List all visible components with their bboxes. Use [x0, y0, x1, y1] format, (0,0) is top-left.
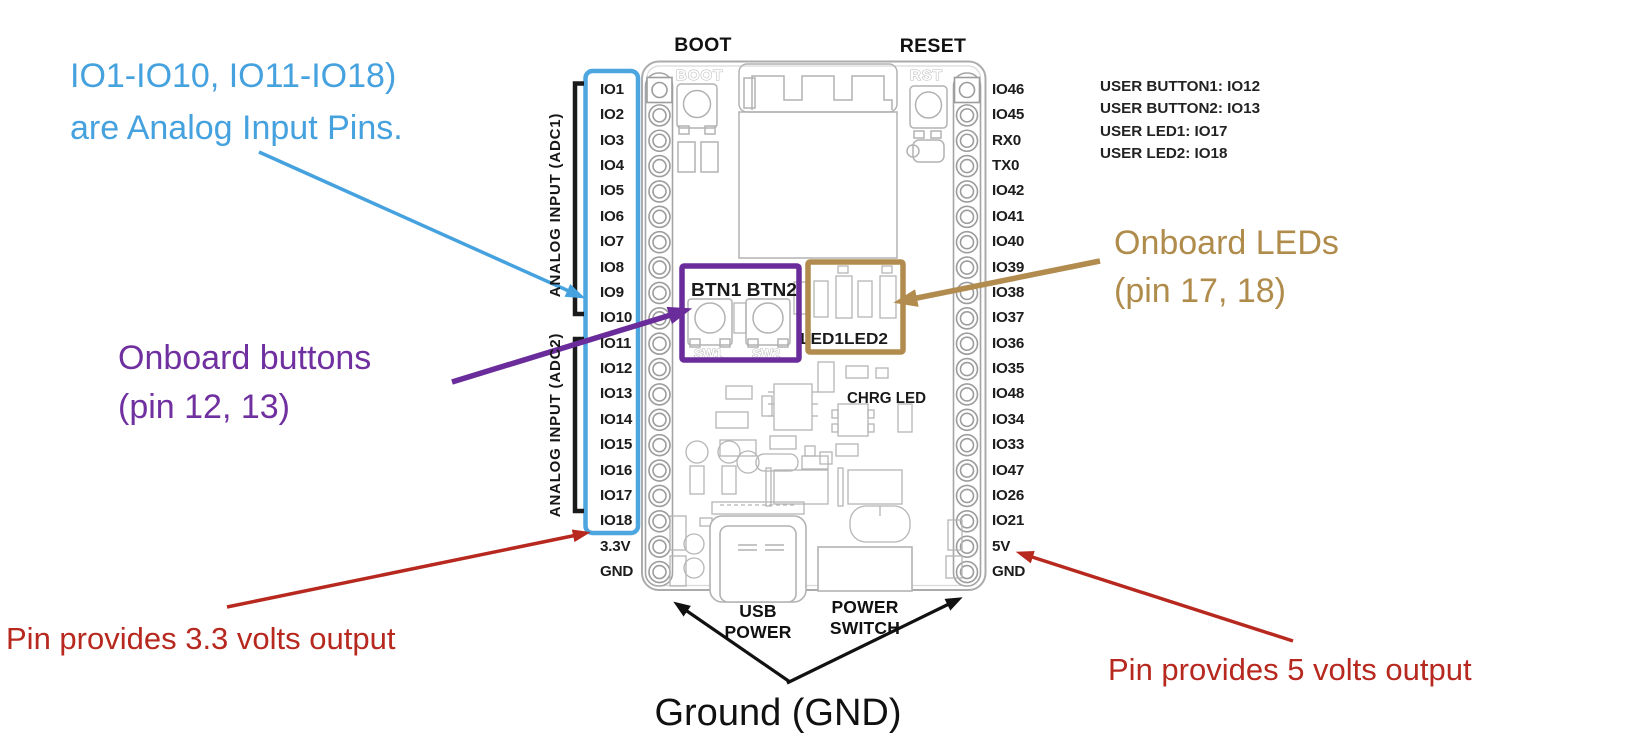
silkscreen-text: BOOT RST BTN1 BTN2 SW1 SW2 LED1LED2 CHRG…	[676, 67, 943, 407]
pin-label-left-io8: IO8	[600, 258, 624, 278]
user-led2-assignment: USER LED2: IO18	[1100, 143, 1260, 165]
reset-button	[907, 86, 947, 162]
analog-pins-note-line1: IO1-IO10, IO11-IO18)	[70, 50, 403, 102]
power-switch-component	[818, 547, 912, 591]
pin-label-right-io37: IO37	[992, 308, 1024, 328]
pin-label-left-io7: IO7	[600, 232, 624, 252]
pin-label-left-io14: IO14	[600, 410, 632, 430]
pin-label-left-io6: IO6	[600, 207, 624, 227]
pin-label-right-io40: IO40	[992, 232, 1024, 252]
analog-pins-note-line2: are Analog Input Pins.	[70, 102, 403, 154]
ground-note: Ground (GND)	[628, 692, 928, 735]
pin-label-left-io11: IO11	[600, 334, 631, 354]
user-buttons	[688, 299, 790, 347]
onboard-leds-note: Onboard LEDs (pin 17, 18)	[1114, 219, 1339, 315]
onboard-leds-note-line1: Onboard LEDs	[1114, 219, 1339, 267]
pin-label-left-gnd: GND	[600, 562, 633, 582]
pin-label-right-io38: IO38	[992, 283, 1024, 303]
module-shield	[739, 112, 897, 258]
silkscreen-led1-led2: LED1LED2	[800, 331, 888, 348]
adc1-bracket	[575, 84, 584, 315]
pin-label-left-io12: IO12	[600, 359, 632, 379]
pin-label-left-io17: IO17	[600, 486, 632, 506]
analog-note-arrow	[259, 152, 571, 292]
pin-label-left-io13: IO13	[600, 384, 632, 404]
pin-label-right-gnd: GND	[992, 562, 1025, 582]
pin-label-right-io48: IO48	[992, 384, 1024, 404]
v33-note-arrow	[227, 535, 577, 607]
power-switch-label: POWER SWITCH	[817, 597, 913, 638]
pin-label-left-io9: IO9	[600, 283, 624, 303]
board-outline	[642, 62, 986, 591]
v5-output-note: Pin provides 5 volts output	[1108, 652, 1472, 688]
silkscreen-btn1-btn2: BTN1 BTN2	[691, 280, 797, 300]
silkscreen-chrg-led: CHRG LED	[847, 390, 926, 407]
pin-label-left-33v: 3.3V	[600, 537, 630, 557]
user-button2-assignment: USER BUTTON2: IO13	[1100, 98, 1260, 120]
pin-label-left-io4: IO4	[600, 156, 624, 176]
pin-label-right-5v: 5V	[992, 537, 1010, 557]
v33-output-note: Pin provides 3.3 volts output	[6, 621, 395, 657]
pin-label-right-io39: IO39	[992, 258, 1024, 278]
pin-label-right-tx0: TX0	[992, 156, 1019, 176]
onboard-leds-note-line2: (pin 17, 18)	[1114, 267, 1339, 315]
silkscreen-boot: BOOT	[676, 67, 723, 84]
pin-label-left-io3: IO3	[600, 131, 624, 151]
pinout-diagram: BOOT RST BTN1 BTN2 SW1 SW2 LED1LED2 CHRG…	[0, 0, 1634, 754]
pin-label-right-io41: IO41	[992, 207, 1024, 227]
user-led1-assignment: USER LED1: IO17	[1100, 121, 1260, 143]
adc2-bracket	[575, 339, 584, 511]
v5-note-arrow	[1029, 556, 1293, 641]
user-pin-assignments: USER BUTTON1: IO12 USER BUTTON2: IO13 US…	[1100, 76, 1260, 165]
power-switch-label-line2: SWITCH	[817, 618, 913, 639]
pin-label-left-io18: IO18	[600, 511, 632, 531]
pin-label-right-io42: IO42	[992, 181, 1024, 201]
pin-label-right-io26: IO26	[992, 486, 1024, 506]
pin-label-left-io10: IO10	[600, 308, 632, 328]
onboard-buttons-note-line2: (pin 12, 13)	[118, 383, 371, 432]
pin-label-right-io21: IO21	[992, 511, 1024, 531]
pin-label-left-io15: IO15	[600, 435, 632, 455]
adc-brackets	[575, 84, 584, 512]
pin-label-left-io5: IO5	[600, 181, 624, 201]
onboard-buttons-note: Onboard buttons (pin 12, 13)	[118, 334, 371, 432]
power-switch-label-line1: POWER	[817, 597, 913, 618]
pin-label-right-io46: IO46	[992, 80, 1024, 100]
pin-label-right-io36: IO36	[992, 334, 1024, 354]
adc2-group-label: ANALOG INPUT (ADC2)	[547, 325, 565, 525]
usb-power-label: USB POWER	[709, 601, 807, 642]
user-button1-assignment: USER BUTTON1: IO12	[1100, 76, 1260, 98]
pin-label-right-io35: IO35	[992, 359, 1024, 379]
pin-label-right-io47: IO47	[992, 461, 1024, 481]
reset-top-label: RESET	[883, 35, 983, 58]
usb-connector	[710, 516, 806, 602]
pin-label-left-io1: IO1	[600, 80, 624, 100]
pin-label-right-io45: IO45	[992, 105, 1024, 125]
boot-button	[677, 84, 718, 172]
pin-holes	[647, 78, 980, 583]
pin-label-left-io16: IO16	[600, 461, 632, 481]
usb-power-label-line1: USB	[709, 601, 807, 622]
onboard-buttons-note-line1: Onboard buttons	[118, 334, 371, 383]
pin-label-left-io2: IO2	[600, 105, 624, 125]
usb-power-label-line2: POWER	[709, 622, 807, 643]
wifi-antenna	[739, 64, 897, 112]
adc1-group-label: ANALOG INPUT (ADC1)	[547, 105, 565, 305]
analog-pins-note: IO1-IO10, IO11-IO18) are Analog Input Pi…	[70, 50, 403, 154]
pin-label-right-io34: IO34	[992, 410, 1024, 430]
pin-label-right-io33: IO33	[992, 435, 1024, 455]
boot-top-label: BOOT	[653, 34, 753, 57]
pin-label-right-rx0: RX0	[992, 131, 1021, 151]
silkscreen-rst: RST	[910, 67, 943, 84]
